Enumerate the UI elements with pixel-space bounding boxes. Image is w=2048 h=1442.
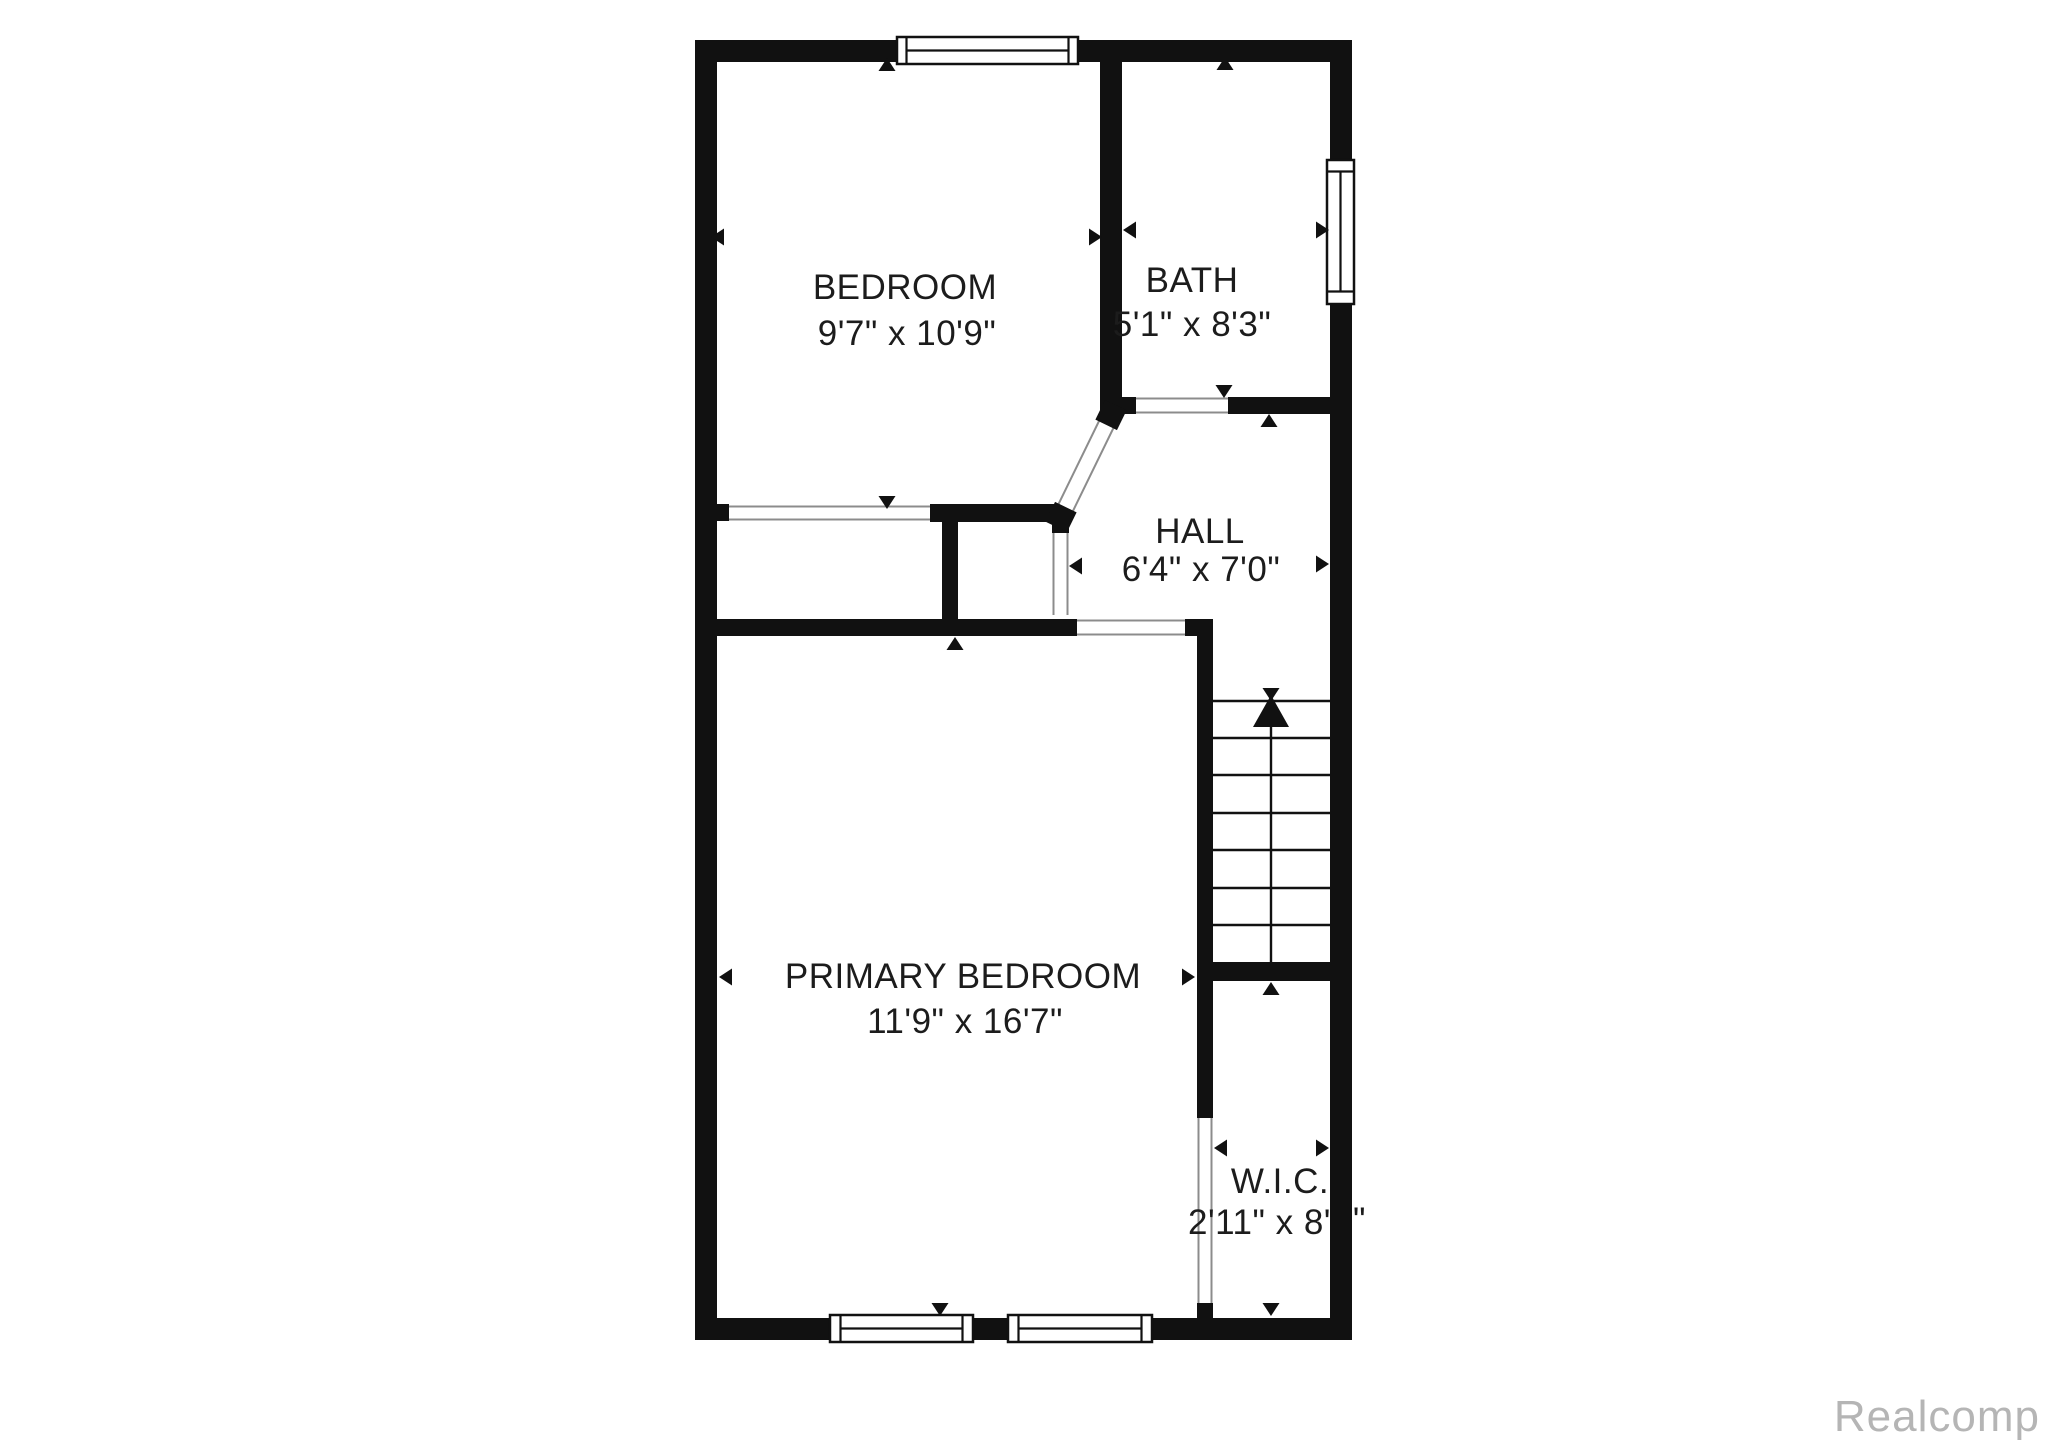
closet-opening [729,504,930,522]
bath-label: BATH [1146,261,1239,300]
floor-plan-canvas: BEDROOM 9'7" x 10'9" BATH 5'1" x 8'3" HA… [0,0,2048,1442]
wall-closet-stub-left [717,504,729,521]
bath-dims: 5'1" x 8'3" [1113,305,1272,344]
wall-wic-stub [1197,1303,1213,1319]
background [0,0,2048,1442]
wall-exterior-left [695,40,717,1340]
window-bottom-left [830,1315,973,1342]
wall-stairs-bottom [1197,962,1352,981]
primary-bedroom-dims: 11'9" x 16'7" [867,1002,1063,1041]
bath-door-opening [1136,396,1228,415]
window-bottom-right [1008,1315,1152,1342]
bedroom-label: BEDROOM [813,268,997,307]
bedroom-dims: 9'7" x 10'9" [818,314,997,353]
wall-bath-bottom-right [1228,397,1352,414]
wall-bedroom-bath-divider [1100,40,1122,416]
primary-bedroom-door-opening [1077,618,1185,637]
wall-hall-bottom [700,619,1077,636]
primary-bedroom-label: PRIMARY BEDROOM [785,957,1141,996]
wic-dims-clipped: " [1353,1201,1366,1240]
window-right [1327,160,1354,304]
hall-dims: 6'4" x 7'0" [1122,550,1281,589]
hall-label: HALL [1155,512,1245,551]
window-top [897,37,1078,64]
wic-label: W.I.C. [1231,1162,1329,1201]
closet-side-opening [1052,533,1069,615]
wall-closet-divider [942,504,958,635]
wall-stairs-left [1197,619,1213,1118]
realcomp-watermark: Realcomp [1834,1392,2040,1441]
floor-plan-svg: BEDROOM 9'7" x 10'9" BATH 5'1" x 8'3" HA… [0,0,2048,1442]
wic-dims: 2'11" x 8' [1188,1203,1331,1242]
